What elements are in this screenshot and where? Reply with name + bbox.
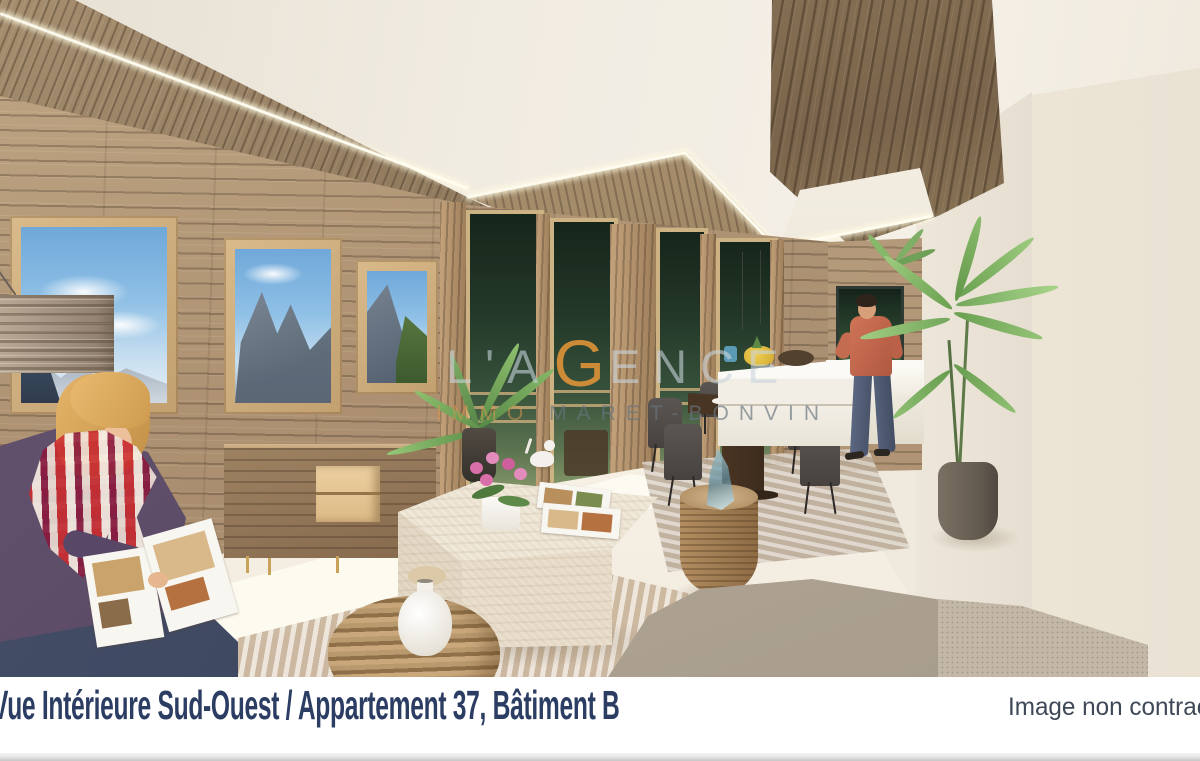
caption-note: Image non contractuelle	[1008, 693, 1200, 722]
fruit-bowl-yellow	[744, 346, 774, 366]
window-glass	[235, 249, 331, 403]
kettle	[724, 346, 737, 362]
window-mountain-2	[224, 238, 342, 414]
fruit-bowl-dark	[778, 350, 814, 366]
caption-bar: Vue Intérieure Sud-Ouest / Appartement 3…	[0, 677, 1200, 753]
man-figure-hair	[856, 294, 877, 307]
pendant-cord	[760, 250, 761, 324]
orchid-flower	[514, 468, 527, 480]
sideboard-leg	[268, 558, 271, 575]
woman-figure-hand	[148, 572, 168, 588]
palm-pot	[938, 462, 998, 540]
orchid-flower	[486, 452, 499, 464]
sideboard-leg	[246, 556, 249, 573]
sideboard-leg	[336, 556, 339, 573]
window-glass	[367, 271, 427, 383]
wood-post	[700, 234, 716, 478]
orchid-flower	[470, 462, 483, 474]
caption-title: Vue Intérieure Sud-Ouest / Appartement 3…	[0, 682, 619, 729]
kitchen-island	[718, 358, 862, 446]
log-side-table	[680, 496, 758, 594]
window-mountain-3	[356, 260, 438, 394]
glass-door-forest	[550, 218, 618, 502]
white-vase-mouth	[417, 579, 433, 583]
orchid-flower	[502, 458, 515, 470]
bottom-scrollbar-strip	[0, 753, 1200, 761]
island-drawer-seam	[718, 404, 862, 406]
pendant-lamp	[0, 295, 114, 373]
cat-figurine-head	[544, 440, 555, 451]
screenshot: L'AGENCE IMMOMARET-BONVIN Vue Intérieure…	[0, 0, 1200, 761]
shelf-divider	[316, 492, 380, 495]
man-figure-shoe	[874, 449, 890, 456]
cat-figurine	[530, 451, 554, 467]
pendant-cord	[742, 252, 743, 330]
interior-rendering: L'AGENCE IMMOMARET-BONVIN	[0, 0, 1200, 677]
man-figure	[850, 316, 892, 376]
white-vase	[398, 590, 452, 656]
balcony-furniture	[564, 430, 608, 476]
orchid-flower	[480, 474, 493, 486]
